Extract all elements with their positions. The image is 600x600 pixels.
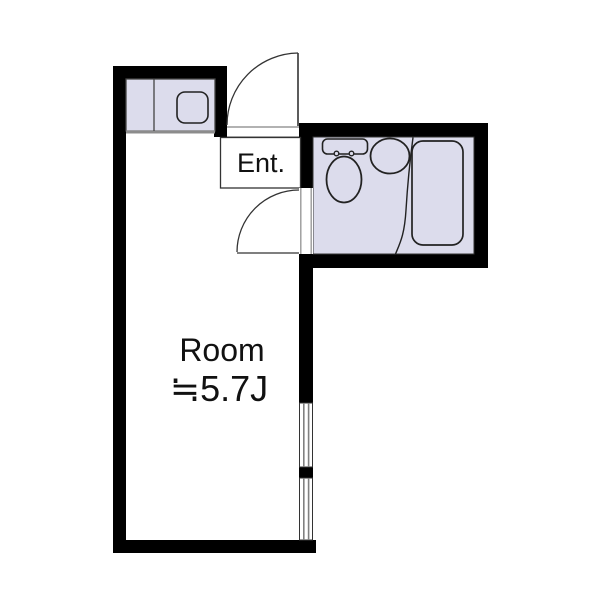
- entrance-stub-wall: [214, 66, 227, 137]
- bottom-wall: [113, 540, 316, 553]
- bathroom-door-swing-arc: [237, 190, 299, 252]
- window-divider-wall: [299, 467, 313, 478]
- toilet-seat-hinge-left: [334, 151, 339, 156]
- main-room: Room ≒5.7J: [170, 332, 268, 409]
- window-2: [300, 478, 313, 540]
- kitchen-sink: [177, 92, 208, 123]
- toilet-tank: [323, 139, 368, 154]
- kitchenette: [126, 79, 215, 132]
- room-area-label: ≒5.7J: [170, 368, 268, 409]
- bathroom-door: [237, 188, 313, 254]
- top-wall: [113, 66, 227, 79]
- bathtub: [412, 141, 463, 245]
- entrance-label: Ent.: [237, 148, 285, 178]
- entrance-threshold: [227, 126, 299, 138]
- floor-plan-drawing: Ent. Room ≒5.7J: [0, 0, 600, 600]
- wash-basin: [371, 139, 410, 174]
- front-door-swing-arc: [227, 53, 298, 125]
- toilet-bowl: [327, 157, 362, 203]
- bathroom-bottom-wall: [299, 254, 488, 268]
- entrance: Ent.: [221, 53, 301, 188]
- toilet-seat-hinge-right: [349, 151, 354, 156]
- room-right-wall: [299, 254, 313, 403]
- bathroom: [313, 137, 474, 254]
- left-wall: [113, 66, 126, 553]
- bathroom-right-wall: [474, 123, 488, 268]
- bathroom-top-wall: [299, 123, 488, 137]
- room-label: Room: [179, 332, 264, 368]
- floor-plan-canvas: Ent. Room ≒5.7J: [0, 0, 600, 600]
- window-1: [300, 403, 313, 467]
